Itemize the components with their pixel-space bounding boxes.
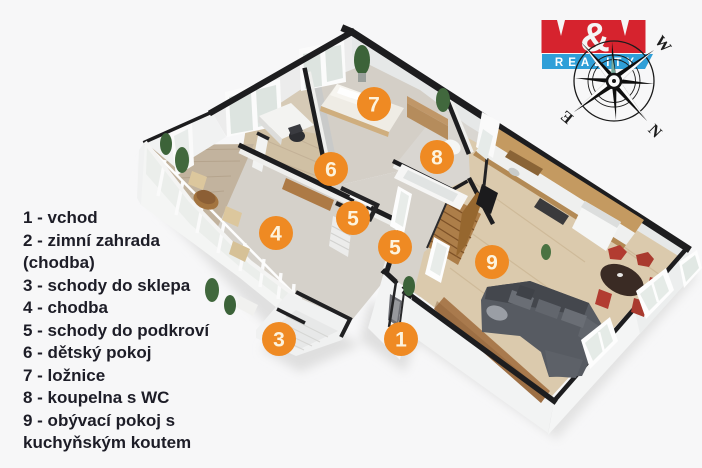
- svg-text:8: 8: [431, 147, 443, 170]
- svg-text:5: 5: [347, 208, 359, 231]
- svg-text:5: 5: [389, 237, 401, 260]
- svg-text:6: 6: [325, 159, 337, 182]
- svg-text:1: 1: [395, 329, 407, 352]
- svg-text:7: 7: [368, 94, 380, 117]
- svg-text:9: 9: [486, 252, 498, 275]
- svg-text:4: 4: [270, 223, 282, 246]
- svg-text:3: 3: [273, 329, 285, 352]
